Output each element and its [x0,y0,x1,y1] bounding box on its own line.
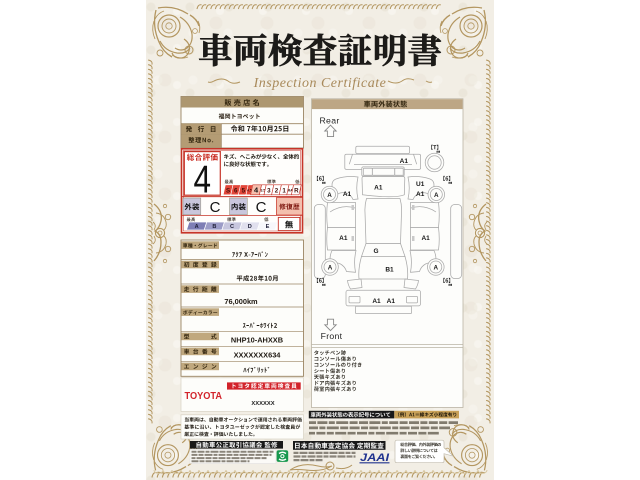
svg-text:A1: A1 [400,158,409,165]
svg-text:R: R [294,187,299,194]
svg-text:NHP10-AHXXB: NHP10-AHXXB [231,335,283,344]
svg-text:6: 6 [234,187,238,194]
svg-text:4: 4 [194,159,212,202]
svg-text:A1: A1 [339,235,348,242]
svg-text:1: 1 [282,187,286,194]
svg-text:A: A [195,224,199,230]
svg-text:Rear: Rear [319,115,339,125]
svg-text:Front: Front [321,331,343,341]
svg-text:XXXXXXX634: XXXXXXX634 [234,350,282,359]
svg-text:G: G [373,248,378,255]
svg-text:A: A [327,192,332,199]
svg-text:A1: A1 [421,235,430,242]
svg-text:76,000km: 76,000km [224,297,258,306]
svg-text:XXXXXX: XXXXXX [251,401,274,407]
svg-text:A1: A1 [372,298,381,305]
svg-text:S: S [226,187,230,194]
svg-text:3: 3 [267,187,271,194]
svg-text:A: A [328,264,333,271]
svg-text:Inspection Certificate: Inspection Certificate [253,76,387,91]
svg-text:A1: A1 [387,298,396,305]
svg-text:E: E [266,224,270,230]
svg-text:A1: A1 [343,191,352,198]
svg-text:B: B [212,224,216,230]
svg-text:C: C [230,224,234,230]
svg-text:5: 5 [242,187,246,194]
svg-text:A1: A1 [416,191,425,198]
svg-text:C: C [256,199,267,216]
svg-text:2: 2 [275,187,279,194]
svg-text:A: A [434,264,439,271]
svg-text:A: A [434,192,439,199]
svg-text:A1: A1 [374,185,383,192]
svg-text:U1: U1 [416,181,425,188]
svg-text:D: D [248,224,252,230]
svg-text:B1: B1 [385,267,394,274]
svg-text:TOYOTA: TOYOTA [185,391,223,402]
svg-text:C: C [210,199,221,216]
